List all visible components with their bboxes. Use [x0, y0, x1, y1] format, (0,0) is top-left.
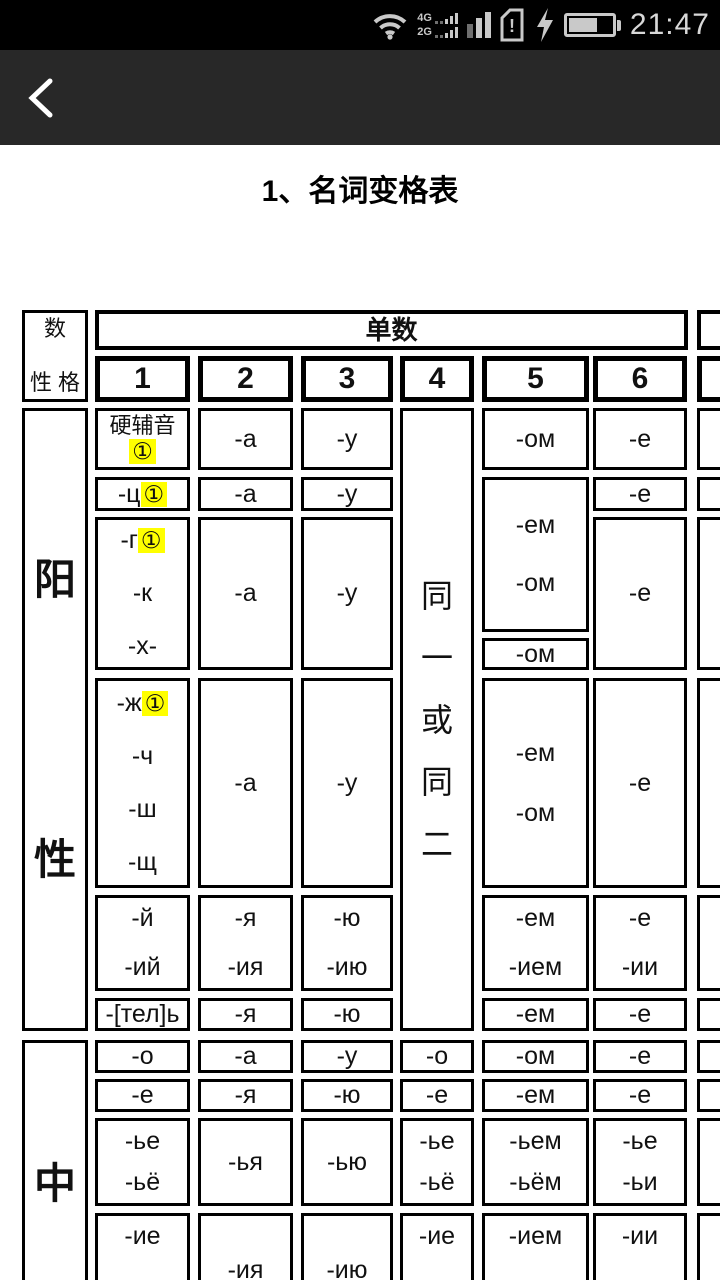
cell-m6-c2: -я — [198, 998, 293, 1031]
cell-m2-c6: -е — [593, 477, 687, 511]
cell-m1-c7-cutoff — [697, 408, 720, 470]
cell-n3-c2: -ья — [198, 1118, 293, 1206]
cell-m1-c2: -а — [198, 408, 293, 470]
cell-n4-c5: -ием — [482, 1213, 589, 1280]
case-column-5: 5 — [482, 356, 589, 402]
cell-m5-c2: -я-ия — [198, 895, 293, 991]
cell-m5-c1: -й-ий — [95, 895, 190, 991]
cell-m3-c7-cutoff — [697, 517, 720, 670]
cell-m2-c3: -у — [301, 477, 393, 511]
neuter-char: 中 — [34, 1163, 76, 1205]
cell-m5-c7-cutoff — [697, 895, 720, 991]
svg-text:!: ! — [509, 16, 515, 36]
row-header-masculine: 阳 性 — [22, 408, 88, 1031]
cell-m3-c1: -г① -к -х- — [95, 517, 190, 670]
cell-n2-c3: -ю — [301, 1079, 393, 1112]
cell-n4-c3: -ию — [301, 1213, 393, 1280]
cell-m2-c7-cutoff — [697, 477, 720, 511]
back-button[interactable] — [18, 74, 66, 122]
cell-m3-c3: -у — [301, 517, 393, 670]
masculine-char-2: 性 — [34, 839, 76, 881]
cell-n2-c4: -е — [400, 1079, 474, 1112]
signal-bars-4g-icon — [435, 13, 458, 24]
cell-n2-c2: -я — [198, 1079, 293, 1112]
cell-m6-c3: -ю — [301, 998, 393, 1031]
cell-n2-c1: -е — [95, 1079, 190, 1112]
status-bar: 4G 2G ! — [0, 0, 720, 50]
plural-header-cell-cutoff — [697, 310, 720, 350]
cell-m1-c1: 硬辅音 ① — [95, 408, 190, 470]
page-title: 1、名词变格表 — [0, 166, 720, 210]
cell-n4-c4: -ие — [400, 1213, 474, 1280]
clock-time: 21:47 — [630, 10, 710, 40]
cell-m1-c3: -у — [301, 408, 393, 470]
cell-m4-c6: -е — [593, 678, 687, 888]
cell-n1-c3: -у — [301, 1040, 393, 1073]
cell-n1-c6: -е — [593, 1040, 687, 1073]
corner-header-cell: 数 性 格 — [22, 310, 88, 402]
cell-m-c4-merged: 同 一 或 同 二 — [400, 408, 474, 1031]
cell-n1-c7-cutoff — [697, 1040, 720, 1073]
signal-strength-icon — [467, 12, 491, 38]
network-4g-label: 4G — [417, 13, 432, 24]
cell-n1-c5: -ом — [482, 1040, 589, 1073]
battery-icon — [564, 13, 621, 37]
signal-bars-2g-icon — [435, 27, 458, 38]
cell-n3-c6: -ье-ьи — [593, 1118, 687, 1206]
cell-m2-3-c5-merged: -ем -ом — [482, 477, 589, 632]
cell-n3-c5: -ьем-ьём — [482, 1118, 589, 1206]
footnote-mark: ① — [129, 439, 156, 464]
corner-number-label: 数 — [44, 318, 66, 340]
case-column-3: 3 — [301, 356, 393, 402]
singular-header-cell: 单数 — [95, 310, 688, 350]
cell-m3-c5: -ом — [482, 638, 589, 670]
cell-n4-c6: -ии — [593, 1213, 687, 1280]
charging-bolt-icon — [535, 8, 555, 42]
cell-m3-c2: -а — [198, 517, 293, 670]
cell-m4-c3: -у — [301, 678, 393, 888]
nav-bar — [0, 50, 720, 145]
cell-n1-c1: -о — [95, 1040, 190, 1073]
cell-m3-c6: -е — [593, 517, 687, 670]
cell-m1-c6: -е — [593, 408, 687, 470]
masculine-char-1: 阳 — [34, 559, 76, 601]
cell-m2-c2: -а — [198, 477, 293, 511]
footnote-mark: ① — [138, 528, 165, 553]
cell-n1-c4: -о — [400, 1040, 474, 1073]
cell-n1-c2: -а — [198, 1040, 293, 1073]
cell-n4-c1: -ие — [95, 1213, 190, 1280]
row-header-neuter: 中 — [22, 1040, 88, 1280]
cellular-network-block: 4G 2G — [417, 13, 458, 38]
footnote-mark: ① — [142, 691, 169, 716]
app-screen: 4G 2G ! — [0, 0, 720, 1280]
cell-n3-c4: -ье-ьё — [400, 1118, 474, 1206]
case-column-2: 2 — [198, 356, 293, 402]
cell-m4-c5: -ем -ом — [482, 678, 589, 888]
cell-m5-c3: -ю-ию — [301, 895, 393, 991]
cell-n3-c1: -ье-ьё — [95, 1118, 190, 1206]
cell-m6-c7-cutoff — [697, 998, 720, 1031]
network-2g-label: 2G — [417, 27, 432, 38]
cell-n4-c7-cutoff — [697, 1213, 720, 1280]
case-column-7-cutoff — [697, 356, 720, 402]
cell-n3-c7-cutoff — [697, 1118, 720, 1206]
singular-header-label: 单数 — [365, 317, 417, 343]
corner-gender-case-label: 性 格 — [30, 372, 80, 394]
cell-m2-c1: -ц① — [95, 477, 190, 511]
wifi-icon — [372, 10, 408, 40]
cell-m5-c6: -е-ии — [593, 895, 687, 991]
cell-m6-c6: -е — [593, 998, 687, 1031]
cell-n2-c7-cutoff — [697, 1079, 720, 1112]
cell-m5-c5: -ем-ием — [482, 895, 589, 991]
back-chevron-icon — [22, 75, 62, 121]
cell-n4-c2: -ия — [198, 1213, 293, 1280]
cell-n2-c6: -е — [593, 1079, 687, 1112]
sim-alert-icon: ! — [500, 8, 526, 42]
case-column-1: 1 — [95, 356, 190, 402]
cell-m4-c7-cutoff — [697, 678, 720, 888]
case-column-4: 4 — [400, 356, 474, 402]
cell-m4-c2: -а — [198, 678, 293, 888]
cell-m1-c5: -ом — [482, 408, 589, 470]
cell-n3-c3: -ью — [301, 1118, 393, 1206]
footnote-mark: ① — [141, 482, 168, 507]
cell-m6-c1: -[тел]ь — [95, 998, 190, 1031]
cell-m4-c1: -ж① -ч -ш -щ — [95, 678, 190, 888]
case-column-6: 6 — [593, 356, 687, 402]
cell-n2-c5: -ем — [482, 1079, 589, 1112]
cell-m6-c5: -ем — [482, 998, 589, 1031]
